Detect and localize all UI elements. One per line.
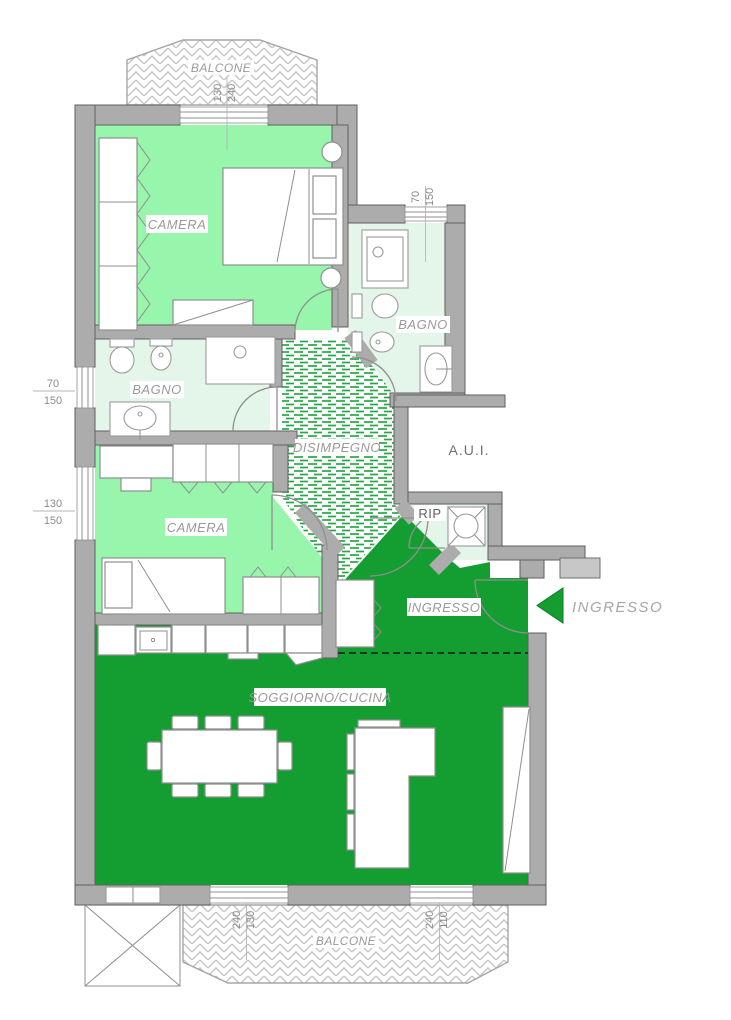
dim-bottom-door-right-h: 240 <box>424 911 436 929</box>
chair <box>238 716 264 729</box>
dim-bottom-door-left-h: 240 <box>231 911 243 929</box>
aui-label: A.U.I. <box>448 442 489 458</box>
chair <box>172 716 198 729</box>
bagno-right-label: BAGNO <box>398 317 447 332</box>
entrance-marker: INGRESSO <box>537 588 663 623</box>
dresser <box>173 300 253 325</box>
label-bagno-left: BAGNO <box>130 381 184 398</box>
washbasin-cabinet <box>362 230 408 288</box>
chair <box>147 742 161 770</box>
left-window-upper <box>77 367 93 408</box>
wall-niche-box-1 <box>106 887 133 903</box>
bottom-door-right <box>410 887 473 903</box>
bidet <box>150 339 172 370</box>
dim-left-window-upper-w: 70 <box>47 378 59 390</box>
soggiorno-label: SOGGIORNO/CUCINA <box>248 690 391 705</box>
label-rip: RIP <box>414 505 446 521</box>
dim-balcony-top-w: 130 <box>212 84 224 102</box>
chair <box>172 784 198 797</box>
chair <box>205 784 231 797</box>
dim-left-window-upper-h: 150 <box>44 395 62 407</box>
entrance-arrow-icon <box>537 588 563 623</box>
dim-left-window-lower-w: 130 <box>44 498 62 510</box>
chair <box>278 742 292 770</box>
wall-niche-box-2 <box>133 887 160 903</box>
chair <box>238 784 264 797</box>
label-balcone-bottom: BALCONE <box>313 933 379 948</box>
rip-label: RIP <box>418 506 441 521</box>
dim-bottom-door-right-w: 110 <box>438 911 450 929</box>
shower-tub <box>206 337 275 384</box>
dim-bagno-right-window-w: 70 <box>410 191 422 203</box>
floor-plan-drawing: BALCONE CAMERA BAGNO BAGNO DISIMPEGNO A.… <box>0 0 731 1020</box>
entrance-arrow-label: INGRESSO <box>572 599 663 616</box>
camera-2-label: CAMERA <box>167 520 226 535</box>
bottom-door-left <box>210 887 288 903</box>
nightstand <box>321 268 341 288</box>
double-bed <box>223 168 343 265</box>
dining-table <box>162 730 277 783</box>
label-camera-1: CAMERA <box>146 215 208 233</box>
label-bagno-right: BAGNO <box>396 316 450 333</box>
courtyard-shaft <box>85 905 180 986</box>
dim-balcony-top-h: 240 <box>226 84 238 102</box>
chair <box>205 716 231 729</box>
dim-left-window-lower-h: 150 <box>44 515 62 527</box>
bagno-right-window <box>405 207 447 221</box>
balcone-bottom-label: BALCONE <box>316 934 377 948</box>
camera-1-label: CAMERA <box>148 217 207 232</box>
nightstand <box>322 142 342 162</box>
floor-plan-page: BALCONE CAMERA BAGNO BAGNO DISIMPEGNO A.… <box>0 0 731 1020</box>
label-balcone-top: BALCONE <box>188 60 254 75</box>
washing-machine <box>420 346 452 392</box>
washbasin <box>110 402 170 440</box>
single-bed <box>102 558 225 614</box>
ingresso-room-label: INGRESSO <box>408 600 481 615</box>
balcony-top-door-window <box>180 107 268 123</box>
toilet <box>352 294 398 318</box>
tall-cabinet <box>503 707 530 873</box>
bagno-left-label: BAGNO <box>132 382 181 397</box>
bidet <box>352 332 394 352</box>
label-camera-2: CAMERA <box>165 518 227 536</box>
dim-bottom-door-left-w: 130 <box>245 911 257 929</box>
left-window-lower <box>77 467 93 540</box>
label-ingresso-room: INGRESSO <box>407 598 481 616</box>
toilet <box>110 339 134 373</box>
disimpegno-label: DISIMPEGNO <box>293 440 381 455</box>
dim-bagno-right-window-h: 150 <box>424 188 436 206</box>
rip-boiler <box>448 507 485 546</box>
label-aui: A.U.I. <box>448 442 489 458</box>
label-disimpegno: DISIMPEGNO <box>293 439 381 456</box>
label-soggiorno: SOGGIORNO/CUCINA <box>248 688 391 706</box>
balcone-top-label: BALCONE <box>191 61 252 75</box>
ingresso-closet <box>336 580 381 647</box>
